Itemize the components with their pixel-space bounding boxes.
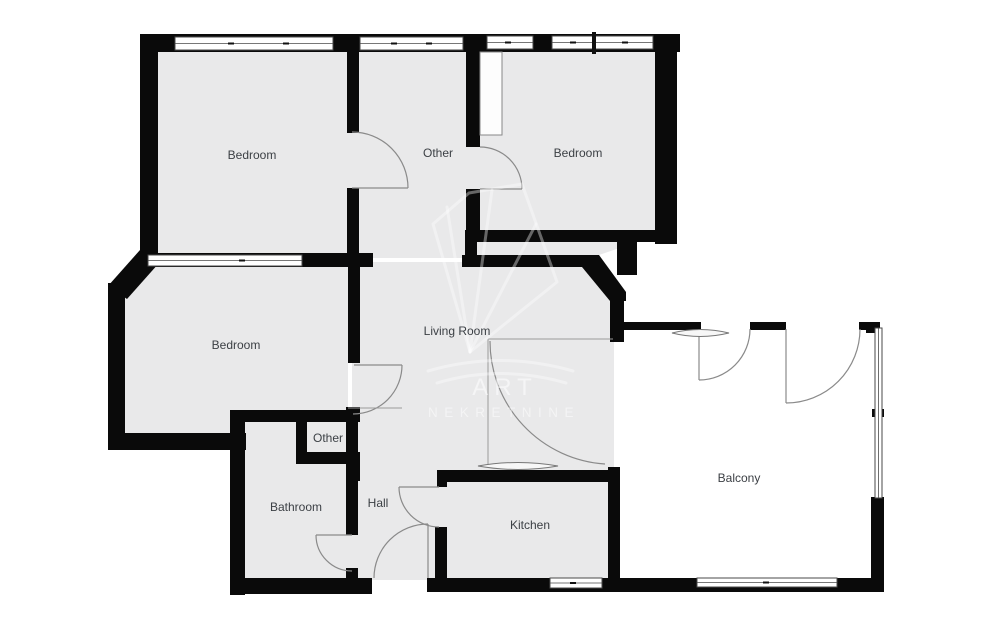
wall-bedroom1-right-top: [347, 52, 359, 133]
wall-other-bedroom2-lower: [466, 189, 480, 241]
window-kitchen-bottom: [550, 578, 602, 588]
floor-plan-drawing: Bedroom Other Bedroom Bedroom Living Roo…: [0, 0, 1000, 622]
wall-bedroom3-right: [348, 262, 360, 363]
window-balcony-bottom: [697, 578, 837, 587]
window-bedroom1-top: [175, 37, 333, 50]
label-living-room: Living Room: [424, 324, 491, 338]
wall-bathroom-left: [230, 410, 245, 595]
floor-plan-page: Bedroom Other Bedroom Bedroom Living Roo…: [0, 0, 1000, 622]
window-interior-bedrooms: [148, 255, 302, 266]
wall-balcony-top-1: [618, 322, 701, 330]
wall-bedroom1-right-lower: [347, 188, 359, 254]
label-bedroom-top-left: Bedroom: [228, 148, 277, 162]
wall-bedroom2-bottom: [475, 230, 677, 242]
wall-balcony-right-lower: [871, 497, 884, 592]
watermark-subtitle: NEKRETNINE: [428, 405, 580, 420]
wall-bedroom2-step: [617, 240, 637, 275]
wall-bedroom2-right: [655, 34, 677, 244]
wall-balcony-top-2: [750, 322, 786, 330]
wall-other-bedroom2-top: [466, 52, 480, 147]
label-other-small: Other: [313, 431, 343, 445]
label-hall: Hall: [368, 496, 389, 510]
label-balcony: Balcony: [718, 471, 761, 485]
wall-bedroom3-bottom: [108, 433, 246, 450]
wall-living-east: [610, 292, 624, 342]
wall-bedroom1-left: [140, 34, 158, 256]
closet-bedroom2: [480, 52, 502, 135]
label-bathroom: Bathroom: [270, 500, 322, 514]
label-kitchen: Kitchen: [510, 518, 550, 532]
wall-bathroom-hall-lower: [346, 568, 358, 580]
wall-kitchen-top: [437, 470, 620, 482]
wall-bathroom-hall-nub: [346, 463, 360, 481]
label-bedroom-top-right: Bedroom: [554, 146, 603, 160]
wall-kitchen-right: [608, 467, 620, 579]
wall-bedroom3-left: [108, 283, 125, 450]
window-balcony-rail: [875, 328, 882, 498]
window-other-top: [360, 37, 463, 50]
wall-kitchen-left-lower: [435, 527, 447, 580]
label-other-top: Other: [423, 146, 453, 160]
wall-kitchen-left-stub: [437, 470, 447, 487]
label-bedroom-left: Bedroom: [212, 338, 261, 352]
window-bedroom2-top-left: [487, 36, 533, 49]
wall-bottom-left: [230, 578, 372, 594]
watermark-title: ART: [472, 374, 538, 401]
